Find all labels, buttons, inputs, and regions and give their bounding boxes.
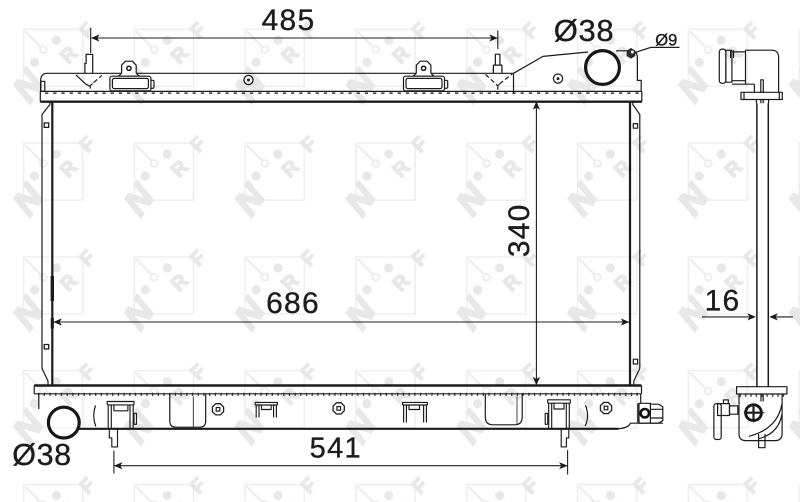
svg-text:Ø9: Ø9: [655, 31, 677, 49]
svg-text:541: 541: [310, 432, 362, 464]
svg-text:686: 686: [266, 287, 320, 320]
svg-text:340: 340: [503, 203, 536, 257]
svg-text:Ø38: Ø38: [12, 438, 71, 472]
svg-text:16: 16: [705, 285, 741, 318]
svg-text:485: 485: [262, 4, 316, 37]
svg-text:Ø38: Ø38: [554, 13, 614, 48]
